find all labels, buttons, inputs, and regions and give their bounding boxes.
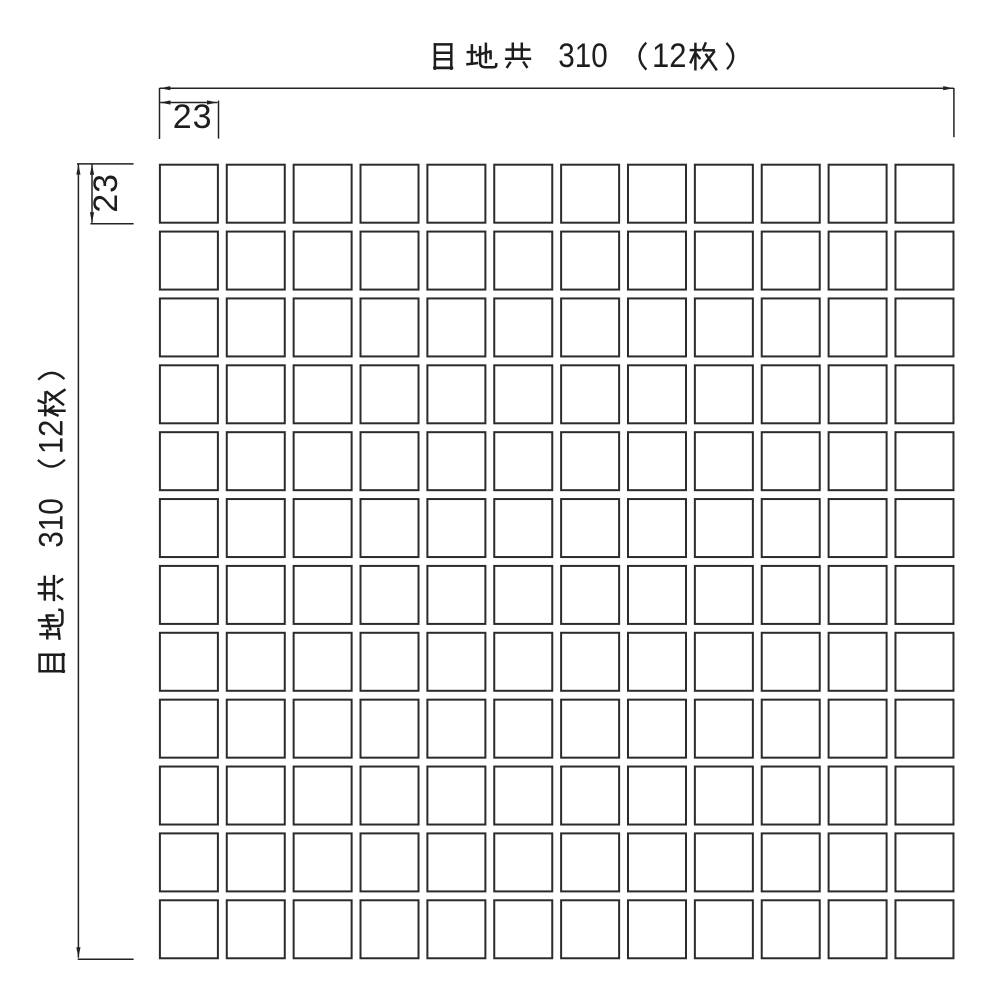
svg-text:310: 310 bbox=[558, 37, 608, 75]
svg-text:12: 12 bbox=[652, 37, 687, 75]
svg-text:23: 23 bbox=[173, 98, 213, 136]
